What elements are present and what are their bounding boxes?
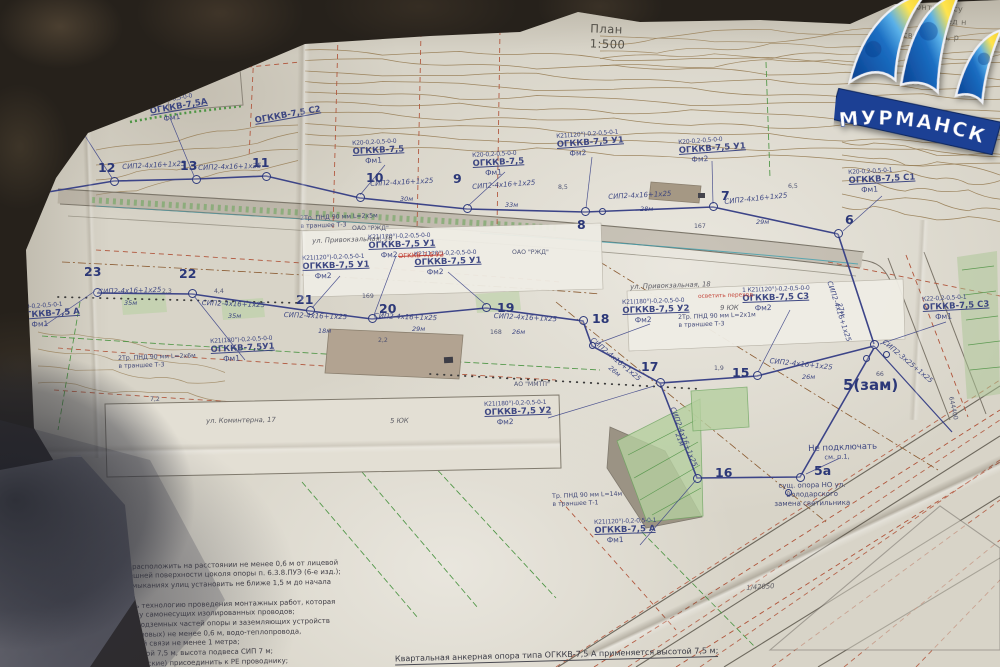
cable-label: СИП2-4х16+1х25 [472,179,536,191]
pole-number: 12 [98,160,115,175]
address-label: 1/42050 [746,582,775,592]
pole-number: 22 [179,266,196,281]
elevation-label: 1,9 [714,365,724,372]
cable-length-label: 29м [412,325,425,333]
pole-number: 20 [379,301,396,316]
cable-label: СИП2-4х16+1х25 [724,191,788,206]
pole-marker [463,204,472,213]
pole-marker [188,289,197,298]
phase-label: Фм2 [755,302,811,313]
pole-marker [356,193,365,202]
pole-marker [656,378,665,387]
elevation-label: 644400 [947,396,959,421]
elevation-label: 7,2 [150,396,160,403]
cable-label: СИП2-4х16+1х25 [608,190,672,201]
pole-number: 15 [732,365,749,380]
cable-label: СИП2-4х16+1х25 [98,286,161,296]
pole-number: 13 [180,158,197,173]
pole-marker [589,342,596,349]
murmansk-logo-text: МУРМАНСК [836,102,991,149]
elevation-label: АО "ММТП" [514,381,550,388]
pole-spec-label: ОГККВ-7,5 С2 [254,104,321,125]
phase-label: Фм2 [497,416,552,427]
phase-label: Фм1 [607,534,658,545]
elevation-label: ОАО "РЖД" [352,225,389,232]
phase-label: Фм1 [935,309,990,321]
pole-spec-label: К21(120°)-0,2-0,5-0-1ОГККВ-7,5 АФм1 [594,517,657,545]
elevation-label: 169 [362,293,374,300]
cable-label: СИП2-4х16+1х25 [669,406,699,468]
pole-marker [192,175,201,184]
elevation-label: 8,5 [558,184,568,191]
plan-title: План 1:500 [589,21,626,52]
do-not-connect-note: Не подключатьсм. п.1, [808,442,877,462]
noc-line: см. п.1, [824,452,877,462]
pole-marker [482,303,491,312]
phase-label: Фм2 [427,266,482,277]
pole-number: 9 [453,171,462,186]
cable-label: СИП2-4х16+1х25 [202,299,265,309]
cable-length-label: 29м [756,218,769,226]
pole-marker [262,172,271,181]
pole-number: 19 [497,300,514,315]
cable-length-label: 35м [228,312,241,320]
pole-marker [870,340,879,349]
pole-spec-label: К20-0,2-0,5-0-0ОГККВ-7,5 У1Фм2 [678,134,747,165]
pole-marker [599,208,606,215]
pole-number: 16 [715,465,732,480]
pole-spec-label: К21(180°)-0,2-0,5-0-1ОГККВ-7,5 У2Фм2 [484,399,552,427]
pole-number: 11 [252,155,269,170]
pole-marker [753,371,762,380]
cable-length-label: 35м [124,299,137,307]
duct-label: 2Тр. ПНД 90 мм L=2х1мв траншее Т-3 [678,311,756,329]
pole-marker [863,355,870,362]
cable-length-label: 26м [802,373,815,381]
exist-line: замена светильника [774,499,850,509]
address-label: ул. Привокзальная, 18 [630,280,711,291]
pole-spec-label: К22-0,2-0,5-0-1ОГККВ-7,5 С3Фм1 [922,293,990,322]
pole-spec-label: К20-0,2-0,5-0-1ОГККВ-7,5 С1Фм1 [848,166,916,195]
pole-number: 5(зам) [843,376,898,394]
logo-sail-icon [956,27,1000,103]
address-label: 5 ЮК [390,417,409,425]
murmansk-logo: МУРМАНСК [831,0,1000,172]
svg-text:МУРМАНСК: МУРМАНСК [836,102,991,149]
cable-label: СИП2-4х16+1х25 [284,311,347,321]
pole-marker [693,474,702,483]
cable-length-label: 26м [512,328,525,336]
elevation-label: 168 [490,329,502,336]
scene: К20-0,2-0,5-0-0ОГККВ-7,5Фм1К20-0,2-0,5-0… [0,0,1000,667]
pole-marker [883,351,890,358]
cable-length-label: 33м [505,201,518,209]
plan-title-text: План [590,21,626,37]
duct-label: Тр. ПНД 90 мм L=14мв траншее Т-1 [552,491,623,509]
pole-number: 5а [814,463,831,478]
phase-label: Фм2 [315,270,370,281]
pole-number: 6 [845,212,854,227]
pole-spec-label: К20-0,2-0,5-0-0ОГККВ-7,5Фм1 [472,149,525,178]
cable-label: СИП2-4х16+1х25 [122,160,186,171]
phase-label: Фм1 [485,166,525,177]
cable-label: СИП2-4х16+1х25 [769,357,833,372]
revision-note: ОГККВ-7,5 У2 [398,250,444,260]
cable-length-label: 28м [640,205,653,213]
pole-number: 23 [84,264,101,279]
pole-number: 10 [366,170,383,185]
elevation-label: 2,3 [162,288,172,295]
elevation-label: 4,4 [214,288,224,295]
trench-line: в траншее Т-1 [552,498,622,508]
pole-marker [581,207,590,216]
elevation-label: ОАО "РЖД" [512,249,549,256]
pole-marker [709,202,718,211]
address-label: ул. Коминтерна, 17 [206,416,276,425]
address-label: 9 ЮК [720,304,739,312]
trench-line: в траншее Т-3 [118,360,196,370]
pole-marker [110,177,119,186]
pole-number: 18 [592,311,609,326]
elevation-label: 2,2 [378,337,388,344]
phase-label: Фм1 [365,154,405,165]
pole-number: 8 [577,217,586,232]
cable-length-label: 18м [318,327,331,335]
pole-spec-label: К20-0,2-0,5-0-0ОГККВ-7,5Фм1 [352,137,405,166]
pole-marker [368,314,377,323]
pole-marker [579,316,588,325]
plan-scale: 1:500 [589,36,625,52]
trench-line: в траншее Т-3 [678,319,756,329]
phase-label: Фм1 [861,182,916,194]
pole-marker [93,288,102,297]
pole-number: 7 [721,188,730,203]
photo-of-site-plan: { "meta": { "title": "План", "scale": "1… [0,0,1000,667]
pole-number: 21 [296,292,313,307]
pole-type: ОГККВ-7,5 С2 [254,104,321,125]
pole-number: 17 [641,359,658,374]
elevation-label: 6,5 [788,183,798,190]
pole-spec-label: 1 К21(120°)-0,2-0,5-0-0ОГККВ-7,5 С3Фм2 [742,285,810,313]
pole-marker [796,473,805,482]
pole-spec-label: К21(120°)-0,2-0,5-0-1ОГККВ-7,5 У1Фм2 [556,128,625,159]
phase-label: Фм1 [223,352,275,364]
pole-marker [785,489,792,496]
pole-spec-label: К21(120°)-0,2-0,5-0-1ОГККВ-7,5 У1Фм2 [302,253,370,281]
elevation-label: 167 [694,223,706,230]
pole-marker [834,229,843,238]
pole-spec-label: К21(180°)-0,2-0,5-0-0ОГККВ-7,5У1Фм1 [210,335,275,364]
phase-label: Фм1 [31,317,81,329]
cable-length-label: 30м [400,195,413,203]
duct-label: 2Тр. ПНД 90 мм L=2х6мв траншее Т-3 [118,352,196,370]
